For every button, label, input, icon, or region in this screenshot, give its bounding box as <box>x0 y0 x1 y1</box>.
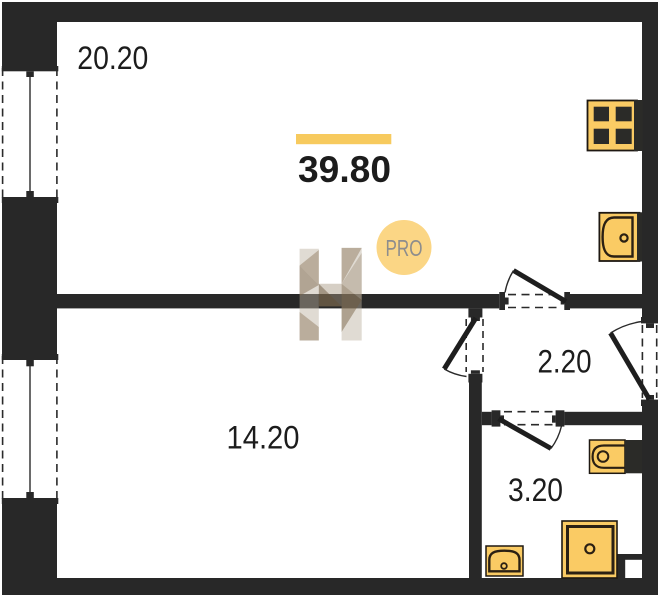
svg-text:PRO: PRO <box>386 235 423 261</box>
svg-text:2.20: 2.20 <box>538 344 592 380</box>
svg-text:3.20: 3.20 <box>508 472 563 508</box>
svg-text:39.80: 39.80 <box>298 149 391 190</box>
svg-text:20.20: 20.20 <box>77 40 148 76</box>
svg-text:14.20: 14.20 <box>227 420 300 456</box>
